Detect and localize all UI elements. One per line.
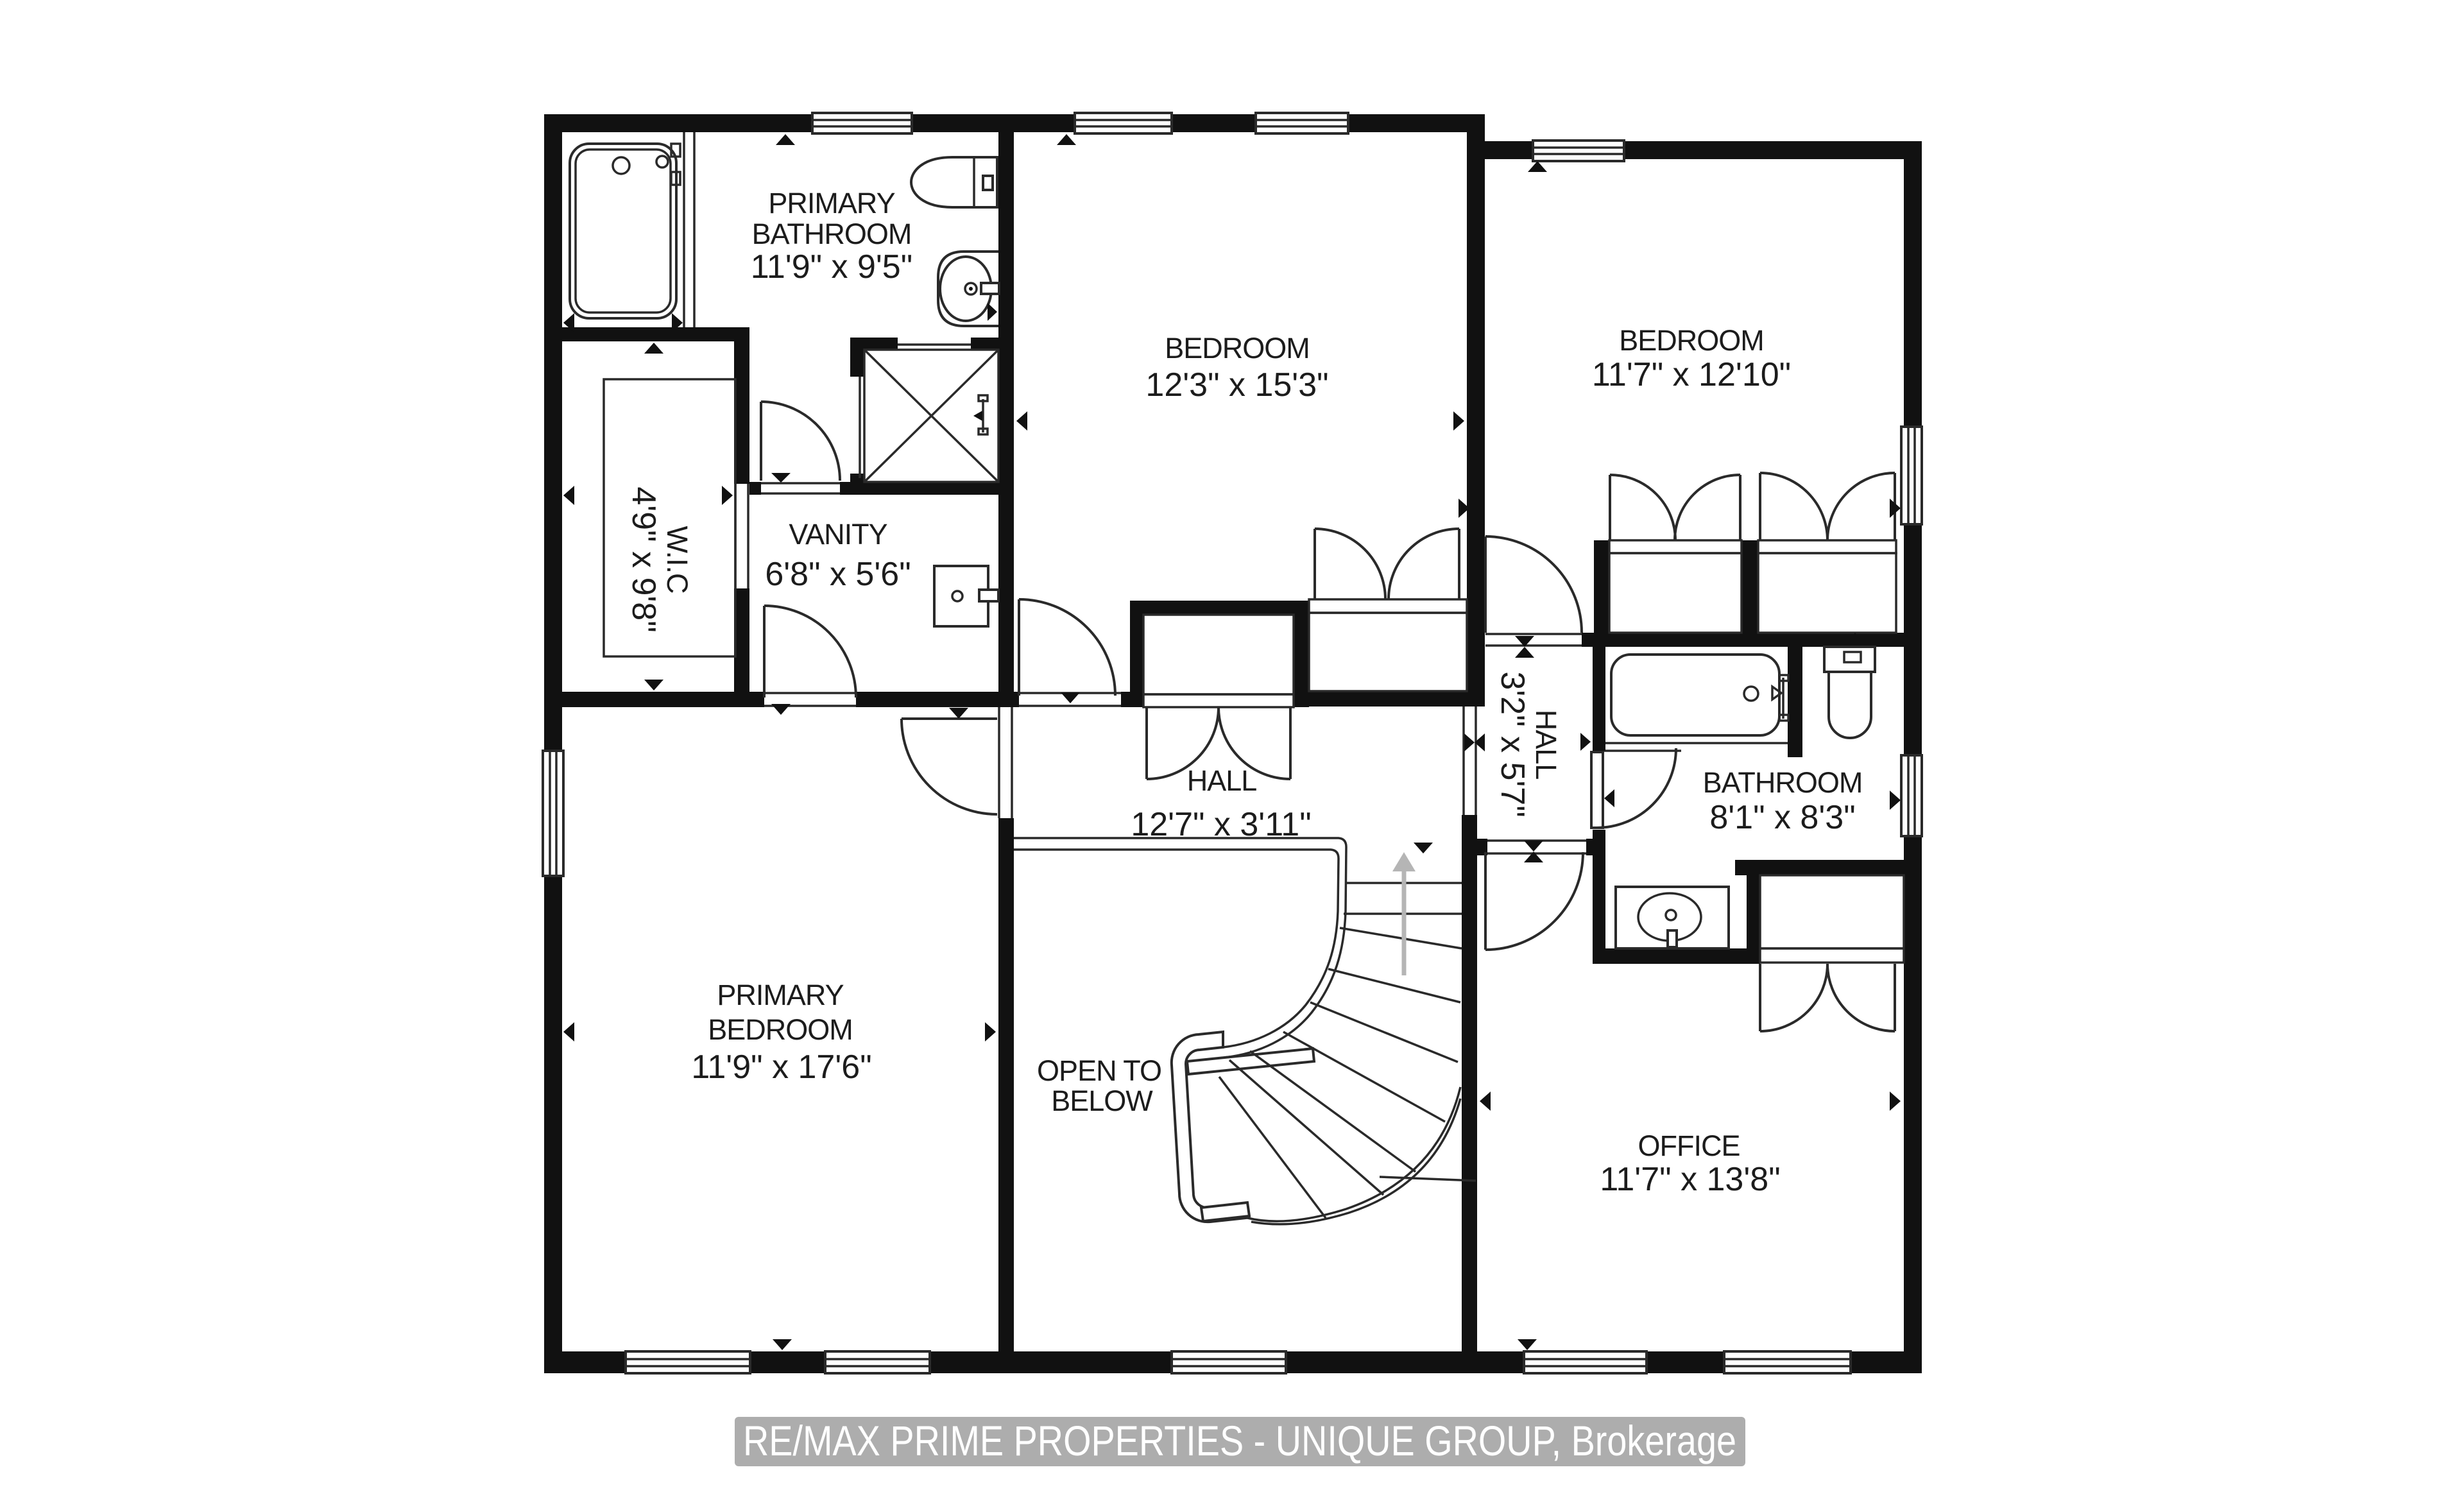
svg-text:3'2" x 5'7": 3'2" x 5'7": [1494, 671, 1531, 817]
svg-text:BEDROOM: BEDROOM: [708, 1013, 853, 1046]
svg-text:11'9" x 17'6": 11'9" x 17'6": [691, 1049, 871, 1086]
svg-text:12'3" x 15'3": 12'3" x 15'3": [1145, 366, 1328, 404]
svg-text:RE/MAX PRIME PROPERTIES - UNIQ: RE/MAX PRIME PROPERTIES - UNIQUE GROUP, …: [743, 1417, 1736, 1464]
svg-text:PRIMARY: PRIMARY: [717, 979, 844, 1011]
svg-text:BEDROOM: BEDROOM: [1619, 324, 1764, 357]
svg-text:OFFICE: OFFICE: [1638, 1129, 1740, 1162]
svg-text:8'1" x 8'3": 8'1" x 8'3": [1709, 799, 1855, 836]
svg-text:HALL: HALL: [1187, 764, 1257, 797]
svg-text:BELOW: BELOW: [1051, 1084, 1153, 1117]
svg-text:BATHROOM: BATHROOM: [1703, 766, 1863, 799]
svg-text:11'7" x 12'10": 11'7" x 12'10": [1592, 356, 1791, 393]
svg-text:12'7" x 3'11": 12'7" x 3'11": [1131, 806, 1311, 843]
svg-text:W.I.C: W.I.C: [661, 526, 694, 594]
svg-text:PRIMARY: PRIMARY: [768, 187, 895, 219]
svg-text:4'9" x 9'8": 4'9" x 9'8": [625, 486, 662, 632]
svg-text:BEDROOM: BEDROOM: [1165, 332, 1310, 364]
svg-text:11'9" x 9'5": 11'9" x 9'5": [751, 248, 912, 286]
svg-text:VANITY: VANITY: [789, 518, 887, 551]
svg-text:BATHROOM: BATHROOM: [752, 218, 912, 250]
svg-text:6'8" x 5'6": 6'8" x 5'6": [765, 556, 911, 593]
svg-text:HALL: HALL: [1530, 710, 1562, 780]
svg-text:OPEN TO: OPEN TO: [1037, 1054, 1161, 1087]
svg-text:11'7" x 13'8": 11'7" x 13'8": [1600, 1161, 1780, 1198]
